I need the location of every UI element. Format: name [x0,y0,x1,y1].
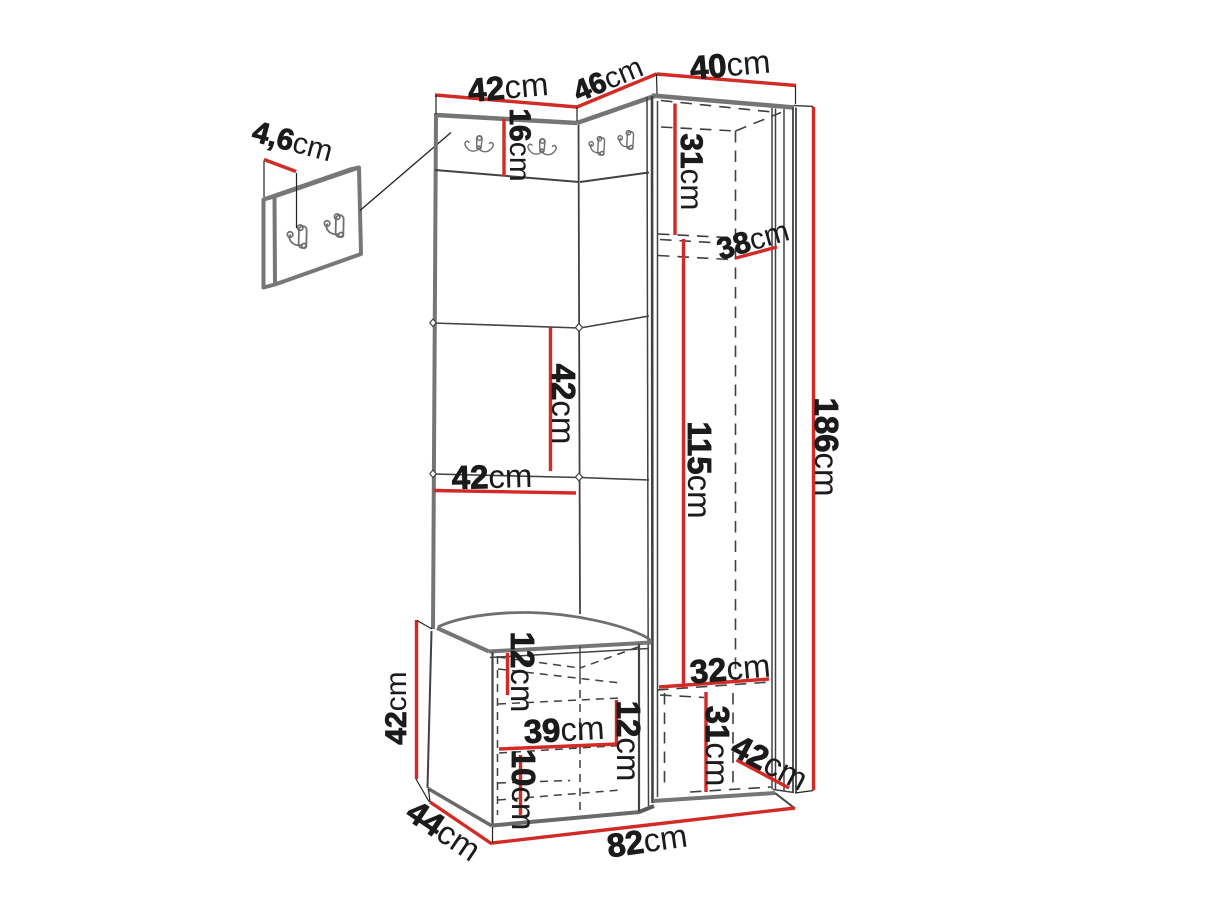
svg-text:32cm: 32cm [688,646,772,690]
svg-text:31cm: 31cm [674,133,710,210]
svg-text:16cm: 16cm [504,108,537,181]
svg-text:115cm: 115cm [682,421,719,518]
svg-text:42cm: 42cm [451,456,533,495]
svg-text:42cm: 42cm [380,671,413,744]
svg-text:10cm: 10cm [506,750,543,831]
svg-text:42cm: 42cm [466,65,550,109]
svg-text:31cm: 31cm [700,706,737,787]
svg-text:39cm: 39cm [523,708,606,749]
svg-text:40cm: 40cm [688,42,772,86]
svg-text:42cm: 42cm [546,364,583,445]
svg-text:186cm: 186cm [809,397,846,496]
svg-text:12cm: 12cm [611,701,648,782]
svg-text:12cm: 12cm [505,632,542,713]
